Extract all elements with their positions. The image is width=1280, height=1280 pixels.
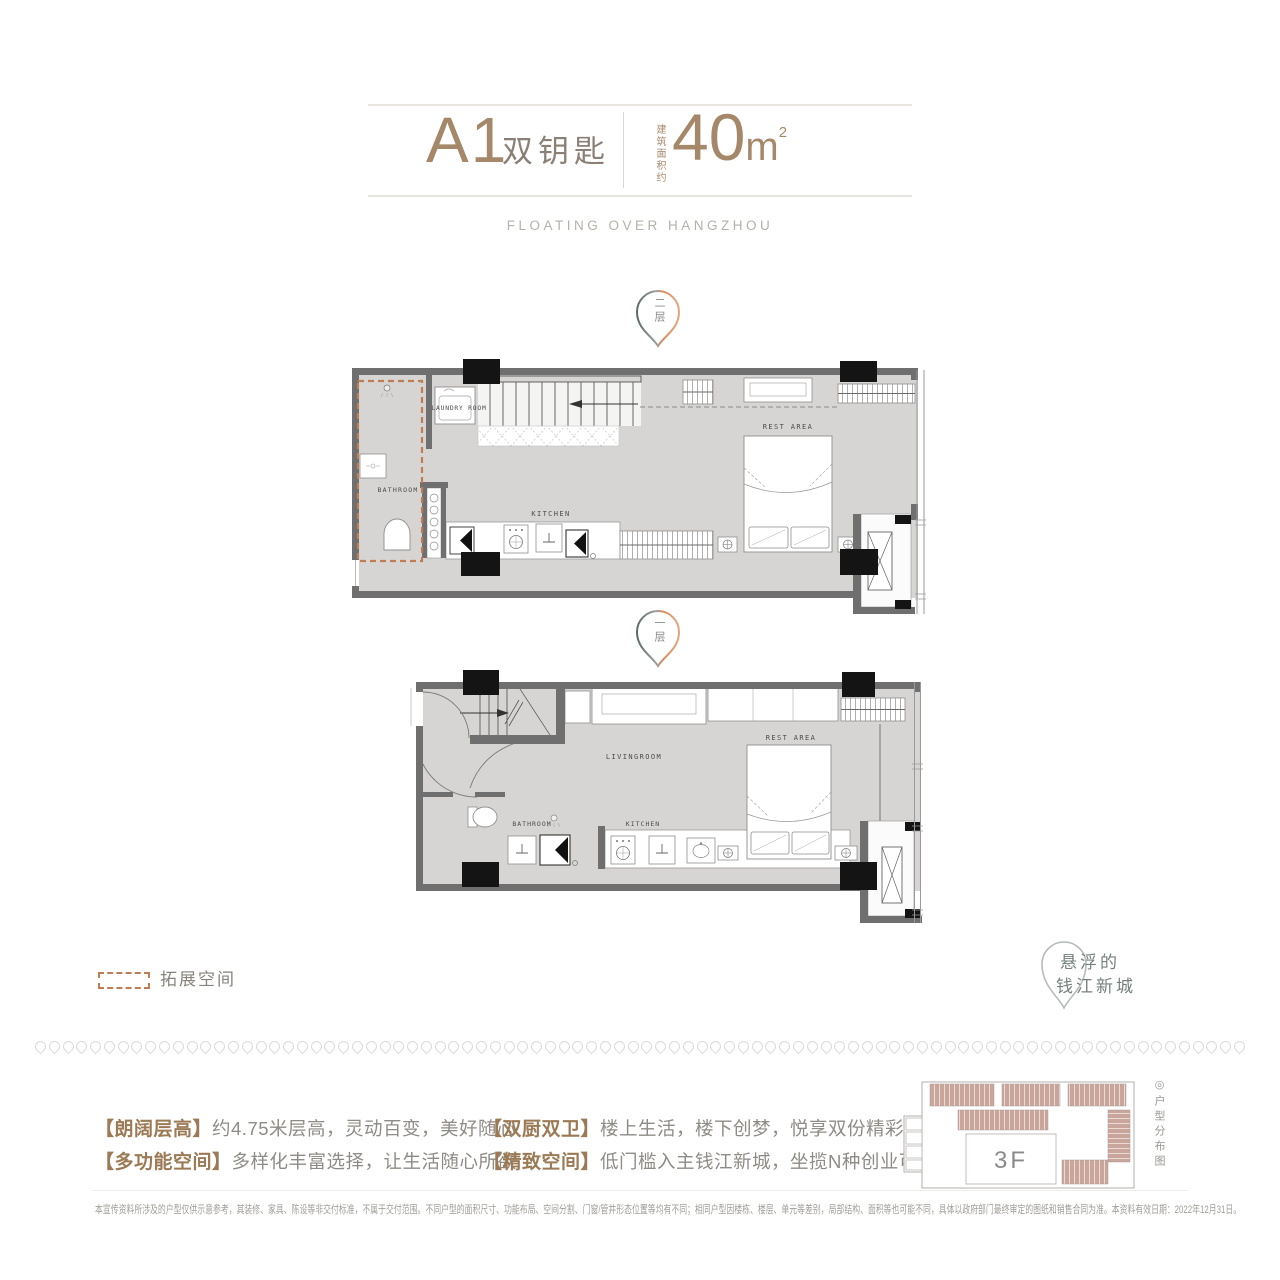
feature-tag: 【精致空间】 [483,1152,600,1173]
decor-pin-icon [1163,1039,1179,1055]
decor-pin-icon [873,1039,889,1055]
decor-pin-icon [1039,1039,1055,1055]
decor-pin-icon [336,1039,352,1055]
brand-line1: 悬浮的 [1060,948,1120,973]
stairs [478,376,641,446]
decor-pin-icon [198,1039,214,1055]
decor-pin-icon [556,1039,572,1055]
decor-pin-icon [129,1039,145,1055]
feature-tag: 【朗阔层高】 [95,1119,212,1140]
decor-pin-icon [460,1039,476,1055]
decor-pin-icon [363,1039,379,1055]
keyplan-caption-text: 户型分布图 [1153,1095,1165,1170]
double-bed-icon [747,745,831,859]
keyplan-floor-label: 3F [994,1147,1028,1174]
decor-pin-icon [846,1039,862,1055]
shower-head-icon [384,385,390,391]
decor-pin-icon [115,1039,131,1055]
area-prefix: 建筑面积约 [652,124,667,184]
decor-pin-icon [1108,1039,1124,1055]
decor-pin-icon [818,1039,834,1055]
decor-pin-icon [33,1039,49,1055]
decor-pin-icon [1053,1039,1069,1055]
keyplan-left-cells [906,1118,922,1170]
decor-pin-icon [88,1039,104,1055]
decor-pin-icon [598,1039,614,1055]
feature-text: 约4.75米层高，灵动百变，美好随心 [212,1118,516,1139]
decor-pin-icon [997,1039,1013,1055]
decor-pin-icon [639,1039,655,1055]
decor-pin-icon [102,1039,118,1055]
decor-pin-icon [1025,1039,1041,1055]
decor-pin-icon [184,1039,200,1055]
entry-door-opening [416,692,423,726]
keyplan-core: 3F [966,1134,1056,1184]
decor-pin-icon [984,1039,1000,1055]
feature-tag: 【多功能空间】 [95,1152,232,1173]
decor-pin-icon [377,1039,393,1055]
decor-pin-icon [956,1039,972,1055]
floor-plan-upper: LAUNDRY ROOM BATHROOM KITCHEN REST AREA [340,356,940,622]
decor-pin-icon [1149,1039,1165,1055]
decor-pin-icon [295,1039,311,1055]
decor-pin-icon [308,1039,324,1055]
decor-pin-icon [405,1039,421,1055]
double-bed-icon [744,436,832,552]
floorplan-flyer: A1 双钥匙 建筑面积约 40m2 FLOATING OVER HANGZHOU… [0,0,1280,1280]
area-unit: m [745,125,778,169]
cabinet [565,691,590,723]
laundry-room-label: LAUNDRY ROOM [431,405,486,412]
feature-tag: 【双厨双卫】 [483,1119,600,1140]
feature-text: 多样化丰富选择，让生活随心所欲 [232,1151,517,1172]
decor-pin-icon [708,1039,724,1055]
decor-pin-icon [515,1039,531,1055]
area-sup: 2 [779,124,787,141]
disclaimer: 本宣传资料所涉及的户型仅供示意参考，其装修、家具、陈设等非交付标准，不属于交付范… [95,1201,1187,1217]
decor-pin-icon [667,1039,683,1055]
decor-pin-icon [157,1039,173,1055]
decor-pin-icon [1232,1039,1248,1055]
decor-pin-icon [212,1039,228,1055]
feature-text: 低门槛入主钱江新城，坐揽N种创业可能 [600,1151,937,1172]
decor-pin-icon [584,1039,600,1055]
decor-pin-icon [143,1039,159,1055]
decor-pin-icon [901,1039,917,1055]
feature-item: 【精致空间】低门槛入主钱江新城，坐揽N种创业可能 [483,1147,937,1174]
decor-pin-icon [1190,1039,1206,1055]
kitchen-label: KITCHEN [626,820,660,828]
expansion-legend-swatch [98,972,150,989]
toilet-icon [384,519,410,550]
bathroom-label: BATHROOM [512,820,551,828]
decor-pin-icon [474,1039,490,1055]
decor-pin-icon [74,1039,90,1055]
decor-pin-row [0,1038,1280,1058]
floor-marker-upper-label: 二层 [651,297,667,325]
decor-pin-icon [419,1039,435,1055]
decor-pin-icon [694,1039,710,1055]
header-rule-bottom [368,195,912,197]
expansion-legend-label: 拓展空间 [160,965,236,990]
decor-pin-icon [543,1039,559,1055]
decor-pin-icon [777,1039,793,1055]
decor-pin-icon [267,1039,283,1055]
decor-pin-icon [171,1039,187,1055]
decor-pin-icon [1121,1039,1137,1055]
decor-pin-icon [1177,1039,1193,1055]
sink-icon [687,838,715,863]
window-strip [915,370,926,614]
decor-pin-icon [529,1039,545,1055]
rest-area-label: REST AREA [766,734,817,742]
decor-pin-icon [432,1039,448,1055]
disclaimer-text: 本宣传资料所涉及的户型仅供示意参考，其装修、家具、陈设等非交付标准，不属于交付范… [95,1201,1241,1217]
area-value: 40m2 [672,104,787,170]
desk [744,378,812,402]
decor-pin-icon [860,1039,876,1055]
decor-pin-icon [1135,1039,1151,1055]
decor-pin-icon [1204,1039,1220,1055]
decor-pin-icon [350,1039,366,1055]
decor-pin-icon [887,1039,903,1055]
decor-pin-icon [488,1039,504,1055]
decor-pin-icon [281,1039,297,1055]
decor-pin-icon [736,1039,752,1055]
tagline: FLOATING OVER HANGZHOU [368,218,912,233]
decor-pin-icon [942,1039,958,1055]
floor-plan-lower: LIVINGROOM REST AREA BATHROOM KITCHEN [408,666,943,936]
decor-pin-icon [653,1039,669,1055]
decor-pin-icon [763,1039,779,1055]
feature-item: 【双厨双卫】楼上生活，楼下创梦，悦享双份精彩 [483,1114,904,1141]
decor-pin-icon [970,1039,986,1055]
keyplan-diagram: 3F [902,1076,1150,1196]
decor-pin-icon [322,1039,338,1055]
livingroom-label: LIVINGROOM [606,753,662,761]
shelf-cabinet [427,488,441,558]
decor-pin-icon [1218,1039,1234,1055]
sink-icon [360,454,386,478]
decor-pin-icon [749,1039,765,1055]
decor-pin-icon [722,1039,738,1055]
brand-line2: 钱江新城 [1056,972,1136,997]
decor-pin-icon [1094,1039,1110,1055]
decor-pin-icon [60,1039,76,1055]
kitchen-label: KITCHEN [531,510,570,518]
decor-pin-icon [253,1039,269,1055]
keyplan-caption: ◎户型分布图 [1151,1078,1167,1170]
shower-head-icon [551,815,557,821]
decor-pin-icon [47,1039,63,1055]
decor-pin-icon [501,1039,517,1055]
unit-name: 双钥匙 [502,136,610,167]
decor-pin-icon [1011,1039,1027,1055]
decor-pin-icon [832,1039,848,1055]
decor-pin-icon [1080,1039,1096,1055]
floor-marker-lower-label: 一层 [651,617,667,645]
feature-text: 楼上生活，楼下创梦，悦享双份精彩 [600,1118,904,1139]
decor-pin-icon [625,1039,641,1055]
decor-pin-icon [239,1039,255,1055]
unit-code: A1 [426,108,508,172]
decor-pin-icon [391,1039,407,1055]
bathroom-label: BATHROOM [378,486,419,494]
feature-item: 【多功能空间】多样化丰富选择，让生活随心所欲 [95,1147,517,1174]
feature-item: 【朗阔层高】约4.75米层高，灵动百变，美好随心 [95,1114,516,1141]
decor-pin-icon [791,1039,807,1055]
decor-pin-icon [226,1039,242,1055]
disclaimer-rule [92,1190,1188,1191]
decor-pin-icon [915,1039,931,1055]
decor-pin-icon [612,1039,628,1055]
keyplan-caption-icon: ◎ [1153,1078,1165,1095]
area-number: 40 [672,100,745,174]
decor-pin-icon [804,1039,820,1055]
decor-pin-icon [1066,1039,1082,1055]
decor-pin-icon [680,1039,696,1055]
rest-area-label: REST AREA [763,423,814,431]
decor-pin-icon [446,1039,462,1055]
decor-pin-icon [929,1039,945,1055]
header-divider [623,112,624,188]
decor-pin-icon [570,1039,586,1055]
desk [592,688,706,724]
storage [708,688,838,721]
